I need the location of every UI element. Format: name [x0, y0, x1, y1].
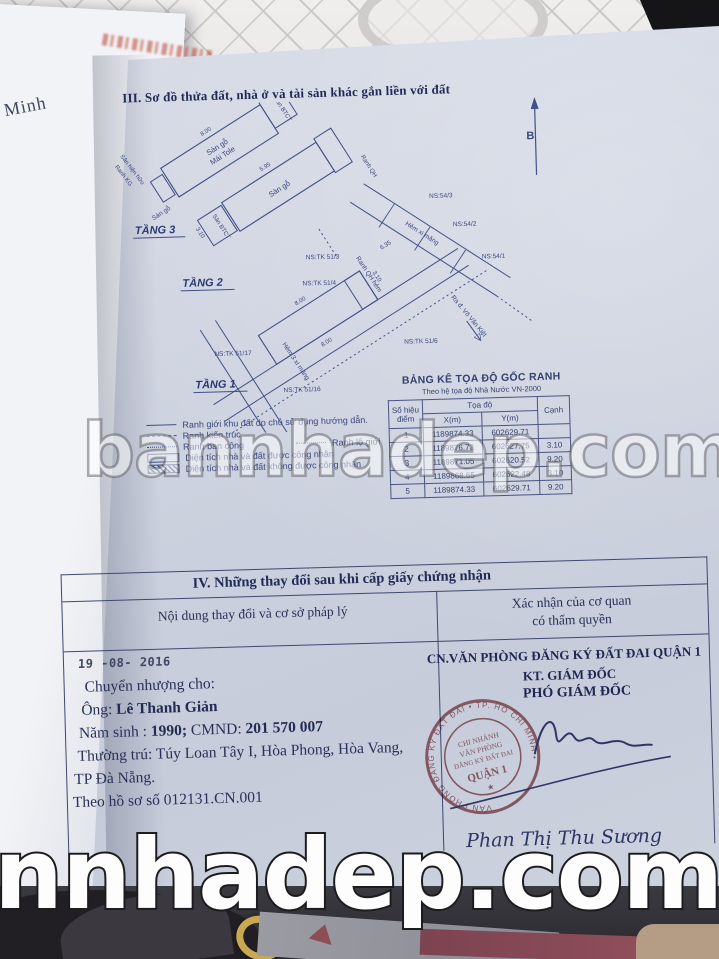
- svg-text:TẦNG 3: TẦNG 3: [135, 223, 176, 237]
- transfer-line: Theo hồ sơ số 012131.CN.001: [73, 789, 263, 812]
- transfer-line: Thường trú: Túy Loan Tây I, Hòa Phong, H…: [77, 739, 403, 766]
- transfer-line: Năm sinh : 1990; CMND: 201 570 007: [79, 718, 324, 743]
- svg-text:Sàn gỗ: Sàn gỗ: [267, 179, 292, 199]
- photo-of-land-certificate: í Minh III. Sơ đồ thửa đất, nhà ở và tài…: [0, 0, 719, 959]
- signature: [437, 698, 680, 825]
- svg-text:Hẻm xi măng: Hẻm xi măng: [404, 220, 440, 247]
- svg-text:Sàn BTCT: Sàn BTCT: [211, 214, 231, 241]
- svg-text:B: B: [526, 130, 534, 142]
- svg-text:NS:TK 51/16: NS:TK 51/16: [283, 386, 321, 394]
- alley-grid: Hẻm xi măng NS:54/3 NS:54/2 NS:54/1 Ra đ…: [350, 179, 534, 343]
- svg-text:Sàn gỗ: Sàn gỗ: [150, 203, 173, 222]
- north-arrow: B: [525, 97, 540, 175]
- section4-heading: IV. Những thay đổi sau khi cấp giấy chứn…: [92, 565, 592, 596]
- svg-text:NS:54/1: NS:54/1: [482, 253, 506, 261]
- section4-left-column-header: Nội dung thay đổi và cơ sở pháp lý: [103, 602, 403, 626]
- svg-text:6.35: 6.35: [379, 240, 393, 252]
- svg-text:TẦNG 2: TẦNG 2: [182, 276, 223, 290]
- svg-text:NS:TK 51/17: NS:TK 51/17: [214, 350, 252, 358]
- watermark-bottom: nnhadep.com: [0, 818, 719, 931]
- svg-text:NS:TK 51/6: NS:TK 51/6: [404, 338, 438, 346]
- svg-text:NS:TK 51/4: NS:TK 51/4: [302, 280, 336, 288]
- section4-right-column-header: Xác nhận của cơ quan có thẩm quyền: [446, 590, 697, 633]
- svg-text:NS:TK 51/3: NS:TK 51/3: [306, 253, 340, 261]
- watermark-middle: bannhadep.com: [82, 408, 719, 494]
- svg-text:Ra đ. Võ Văn Kiệt: Ra đ. Võ Văn Kiệt: [449, 294, 487, 338]
- section4-table: IV. Những thay đổi sau khi cấp giấy chứn…: [61, 556, 716, 861]
- date-stamp: 19 -08- 2016: [78, 654, 171, 671]
- floor2-plan: Sàn gỗ Sàn BTCT 5.95 3.10 Ranh QH: [185, 116, 378, 274]
- svg-text:Ranh QH: Ranh QH: [359, 154, 378, 178]
- floor3-plan: Sàn gỗ Mái Tole Sàn BTCT 8.00 3.10 Sàn g…: [110, 94, 315, 226]
- director-title: KT. GIÁM ĐỐC: [494, 665, 644, 685]
- transfer-line: TP Đà Nẵng.: [74, 769, 155, 789]
- transfer-line: Ông: Lê Thanh Giản: [81, 698, 218, 720]
- svg-text:TẦNG 1: TẦNG 1: [195, 377, 236, 391]
- svg-text:NS:54/2: NS:54/2: [453, 221, 477, 229]
- svg-text:8.00: 8.00: [320, 337, 334, 349]
- transfer-line: Chuyển nhượng cho:: [84, 675, 215, 697]
- registry-office-name: CN.VĂN PHÒNG ĐĂNG KÝ ĐẤT ĐAI QUẬN 1: [414, 643, 714, 667]
- svg-text:NS:54/3: NS:54/3: [429, 192, 453, 200]
- svg-text:3.10: 3.10: [194, 227, 206, 241]
